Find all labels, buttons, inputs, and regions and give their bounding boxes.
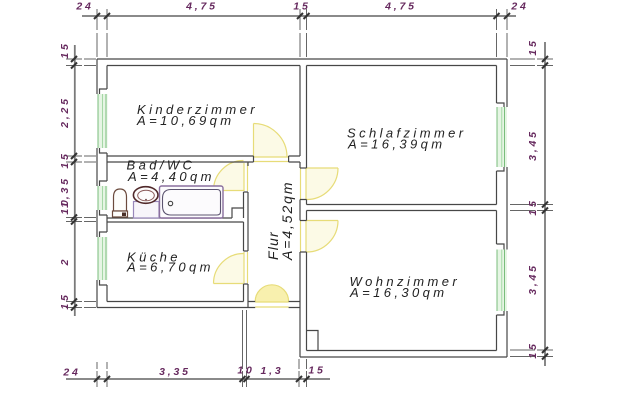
svg-text:24: 24 — [510, 1, 528, 13]
svg-text:15: 15 — [293, 1, 310, 13]
svg-text:15: 15 — [527, 341, 539, 358]
svg-text:3,45: 3,45 — [527, 129, 539, 161]
svg-text:15: 15 — [308, 365, 325, 377]
svg-text:10: 10 — [59, 197, 71, 214]
svg-text:24: 24 — [62, 367, 80, 379]
svg-text:15: 15 — [59, 292, 71, 309]
svg-text:A=16,30qm: A=16,30qm — [349, 285, 447, 300]
svg-text:4,75: 4,75 — [185, 1, 218, 13]
svg-text:2: 2 — [59, 257, 71, 267]
svg-text:A=4,40qm: A=4,40qm — [127, 169, 215, 184]
svg-text:A=6,70qm: A=6,70qm — [126, 260, 214, 275]
svg-text:3,45: 3,45 — [527, 263, 539, 295]
svg-text:15: 15 — [527, 198, 539, 215]
svg-text:3,35: 3,35 — [159, 366, 191, 378]
svg-text:15: 15 — [59, 151, 71, 168]
svg-text:24: 24 — [75, 1, 93, 13]
svg-text:A=4,52qm: A=4,52qm — [279, 181, 295, 261]
svg-text:15: 15 — [527, 38, 539, 55]
svg-text:2,25: 2,25 — [59, 96, 71, 129]
svg-text:1,3: 1,3 — [261, 365, 284, 377]
svg-text:4,75: 4,75 — [384, 1, 417, 13]
svg-text:A=16,39qm: A=16,39qm — [347, 137, 445, 152]
svg-text:10: 10 — [237, 365, 254, 377]
svg-text:15: 15 — [59, 41, 71, 58]
svg-text:A=10,69qm: A=10,69qm — [136, 113, 234, 128]
